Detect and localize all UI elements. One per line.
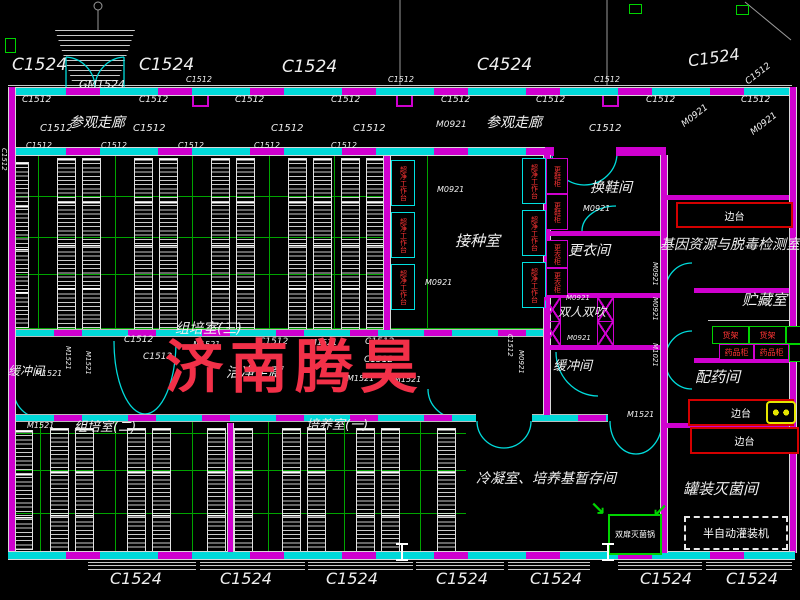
window-code: C1512: [235, 96, 264, 105]
wall-culture2-east: [227, 423, 234, 552]
window-code: C1524: [12, 57, 67, 74]
window-code: C1512: [353, 124, 385, 134]
side-bench: 边台: [690, 427, 799, 454]
room-label-canning: 罐装灭菌间: [683, 482, 758, 497]
shelf-rack: 货架: [749, 326, 786, 344]
room-label-visit-corridor: 参观走廊: [69, 116, 125, 130]
window-code: C1512: [178, 142, 204, 150]
room-label-buffer: 缓冲间: [553, 360, 592, 373]
room-label-shoe-room: 换鞋间: [590, 181, 632, 195]
door-code: M0921: [651, 297, 658, 321]
window-code: C1512: [506, 334, 513, 357]
arrow-icon: ↘: [590, 498, 606, 520]
wall-inoculation-west: [383, 156, 391, 330]
clean-bench: 超净工作台: [522, 262, 546, 308]
window-code: C4524: [477, 57, 532, 74]
shoe-cabinet: 更鞋柜: [546, 194, 568, 230]
window-code: C1512: [26, 142, 52, 150]
door-code: M0921: [437, 186, 464, 194]
room-label-cooling: 冷凝室、培养基暂存间: [476, 472, 616, 486]
room-label-storage: 贮藏室: [742, 293, 787, 308]
medicine-cabinet: 药品柜: [719, 344, 754, 360]
room-label-culture2: 组培室(二): [74, 421, 136, 434]
cabinet-clipped: [789, 344, 800, 362]
room-label-dress-room: 更衣间: [568, 244, 610, 258]
clean-bench: 超净工作台: [522, 158, 546, 204]
clean-bench: 超净工作台: [391, 212, 415, 258]
window-code: C1512: [331, 96, 360, 105]
window-code: C1512: [441, 96, 470, 105]
wall-rightwing-west: [660, 155, 668, 553]
shelf-rack: 货架: [712, 326, 749, 344]
medicine-cabinet: 药品柜: [754, 344, 789, 360]
wardrobe-cabinet: 更衣柜: [546, 268, 568, 296]
door-code: M0921: [517, 350, 524, 374]
floor-plan-canvas: 超净工作台 超净工作台 超净工作台 超净工作台 超净工作台 超净工作台 更鞋柜 …: [0, 0, 800, 600]
window-code: C1512: [124, 336, 153, 345]
window-code: C1512: [594, 76, 620, 84]
wall-recess: [602, 96, 619, 107]
wall-pier: [616, 147, 666, 156]
window-code: C1512: [133, 124, 165, 134]
window-code: C1512: [139, 96, 168, 105]
door-code: M0921: [566, 295, 590, 302]
window-code: C1512: [22, 96, 51, 105]
window-code: C1512: [388, 76, 414, 84]
grid-marker: [5, 38, 16, 53]
window-code: C1512: [589, 124, 621, 134]
door-code: M0921: [425, 279, 452, 287]
grid-marker: [629, 4, 642, 14]
window-code: C1524: [326, 571, 378, 587]
shelf-rack: [786, 326, 800, 344]
window-code: C1512: [331, 142, 357, 150]
window-code: C1512: [186, 76, 212, 84]
window-code: C1512: [646, 96, 675, 105]
door-code: M0921: [436, 121, 467, 130]
clean-bench: 超净工作台: [522, 210, 546, 256]
room-label-grow1: 培养室(一): [306, 419, 368, 432]
door-code: M0921: [583, 205, 610, 213]
window-code: C1524: [110, 571, 162, 587]
room-label-visit-corridor: 参观走廊: [486, 116, 542, 130]
window-code: C1512: [40, 124, 72, 134]
door-code: M1521: [627, 411, 654, 419]
window-code: C1524: [282, 59, 337, 76]
window-code: C1512: [0, 148, 7, 171]
window-code: C1512: [536, 96, 565, 105]
clean-bench: 超净工作台: [391, 160, 415, 206]
window-code: C1524: [726, 571, 778, 587]
window-code: C1512: [101, 142, 127, 150]
wall-recess: [192, 96, 209, 107]
side-bench: 边台: [676, 202, 793, 228]
wall-recess: [396, 96, 413, 107]
wardrobe-cabinet: 更衣柜: [546, 240, 568, 268]
door-code: M1521: [27, 422, 54, 430]
wall-divider: [666, 195, 789, 200]
window-code: C1512: [271, 124, 303, 134]
grid-marker: [736, 5, 749, 15]
sink-icon: [766, 401, 796, 424]
door-code: M0921: [567, 335, 591, 342]
room-label-gene-lab: 基因资源与脱毒检测室: [660, 238, 800, 252]
door-code: M1521: [84, 351, 91, 375]
clean-bench: 超净工作台: [391, 264, 415, 310]
door-threshold: [396, 543, 408, 561]
window-code: C1524: [436, 571, 488, 587]
window-code: C1524: [220, 571, 272, 587]
door-code: M1521: [35, 370, 62, 378]
room-label-inoculation: 接种室: [455, 234, 500, 249]
air-shower-cell: [544, 321, 561, 346]
window-code: C1512: [254, 142, 280, 150]
door-code: M1021: [651, 343, 658, 367]
door-threshold: [602, 543, 614, 561]
wall-corridor-bottom: [532, 414, 608, 422]
arrow-icon: ↙: [652, 500, 668, 522]
room-label-dispensary: 配药间: [695, 370, 740, 385]
window-code: C1512: [741, 96, 770, 105]
air-shower-cell: [597, 321, 614, 346]
window-code: C1524: [640, 571, 692, 587]
filling-machine-box: 半自动灌装机: [684, 516, 788, 550]
door-code: M1521: [64, 346, 71, 370]
wall-left-outer: [8, 87, 16, 553]
door-code: M0921: [651, 262, 658, 286]
watermark-text: 济南腾昊: [165, 338, 425, 396]
window-code: C1524: [530, 571, 582, 587]
window-code: C1524: [139, 57, 194, 74]
shoe-cabinet: 更鞋柜: [546, 158, 568, 194]
wall-right-outer: [789, 87, 797, 553]
wall-divider: [549, 231, 660, 236]
entry-door-code: GM1524: [79, 79, 125, 90]
room-label-air-shower: 双人双吹: [558, 306, 606, 318]
